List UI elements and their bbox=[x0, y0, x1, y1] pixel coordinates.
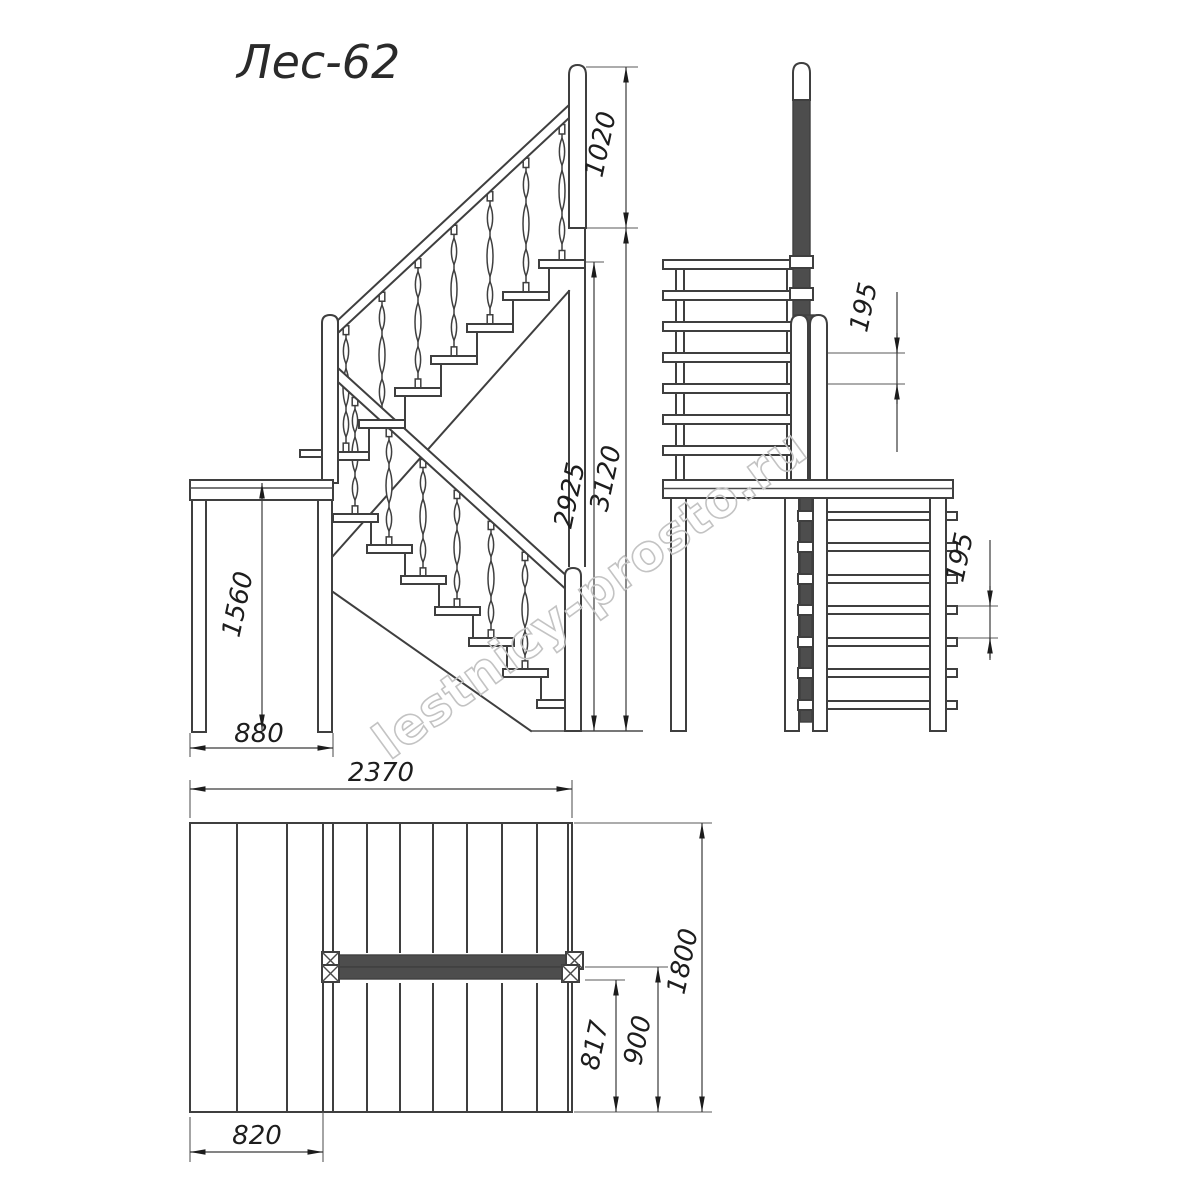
mid-newel-post bbox=[322, 315, 338, 483]
lower-flight-treads-front bbox=[827, 512, 930, 709]
rail-connector-tab bbox=[790, 288, 813, 300]
dim-195-upper-label: 195 bbox=[844, 280, 884, 335]
top-newel-post bbox=[569, 65, 586, 228]
central-post-shaft bbox=[793, 100, 810, 318]
dim-820-label: 820 bbox=[232, 1121, 282, 1151]
dimension-total-length: 2370 bbox=[190, 758, 572, 818]
dim-1560-label: 1560 bbox=[217, 569, 260, 640]
dim-1800-label: 1800 bbox=[662, 926, 705, 997]
dimension-total-height: 3120 bbox=[585, 228, 628, 731]
staircase-blueprint: Лес-62 bbox=[0, 0, 1200, 1200]
drawing-sheet: Лес-62 bbox=[0, 0, 1200, 1200]
front-view: 195 195 bbox=[663, 63, 998, 731]
dim-900-label: 900 bbox=[618, 1013, 658, 1068]
plan-view: 2370 820 1800 900 817 bbox=[190, 758, 712, 1162]
post-cap-plan bbox=[562, 965, 579, 982]
dim-880-label: 880 bbox=[234, 719, 284, 749]
handrail-plan bbox=[322, 952, 583, 982]
dimension-landing-width: 820 bbox=[190, 1112, 323, 1162]
dim-817-label: 817 bbox=[575, 1018, 615, 1073]
drawing-title: Лес-62 bbox=[235, 35, 400, 89]
twin-post-right bbox=[810, 315, 827, 480]
rail-connector-tab bbox=[790, 256, 813, 268]
landing-guardrail-stub bbox=[300, 450, 322, 457]
post-cap-plan bbox=[322, 965, 339, 982]
central-post-cap bbox=[793, 63, 810, 100]
lower-handrail bbox=[338, 368, 570, 593]
side-view: 1020 3120 2925 1560 880 bbox=[190, 65, 643, 757]
dimension-landing-height: 1560 bbox=[217, 483, 262, 730]
dimension-lower-flight-run: 817 bbox=[575, 980, 625, 1112]
dim-3120-label: 3120 bbox=[585, 443, 628, 514]
dimension-landing-depth: 880 bbox=[190, 719, 333, 757]
dimension-upper-step-pitch: 195 bbox=[828, 280, 905, 452]
